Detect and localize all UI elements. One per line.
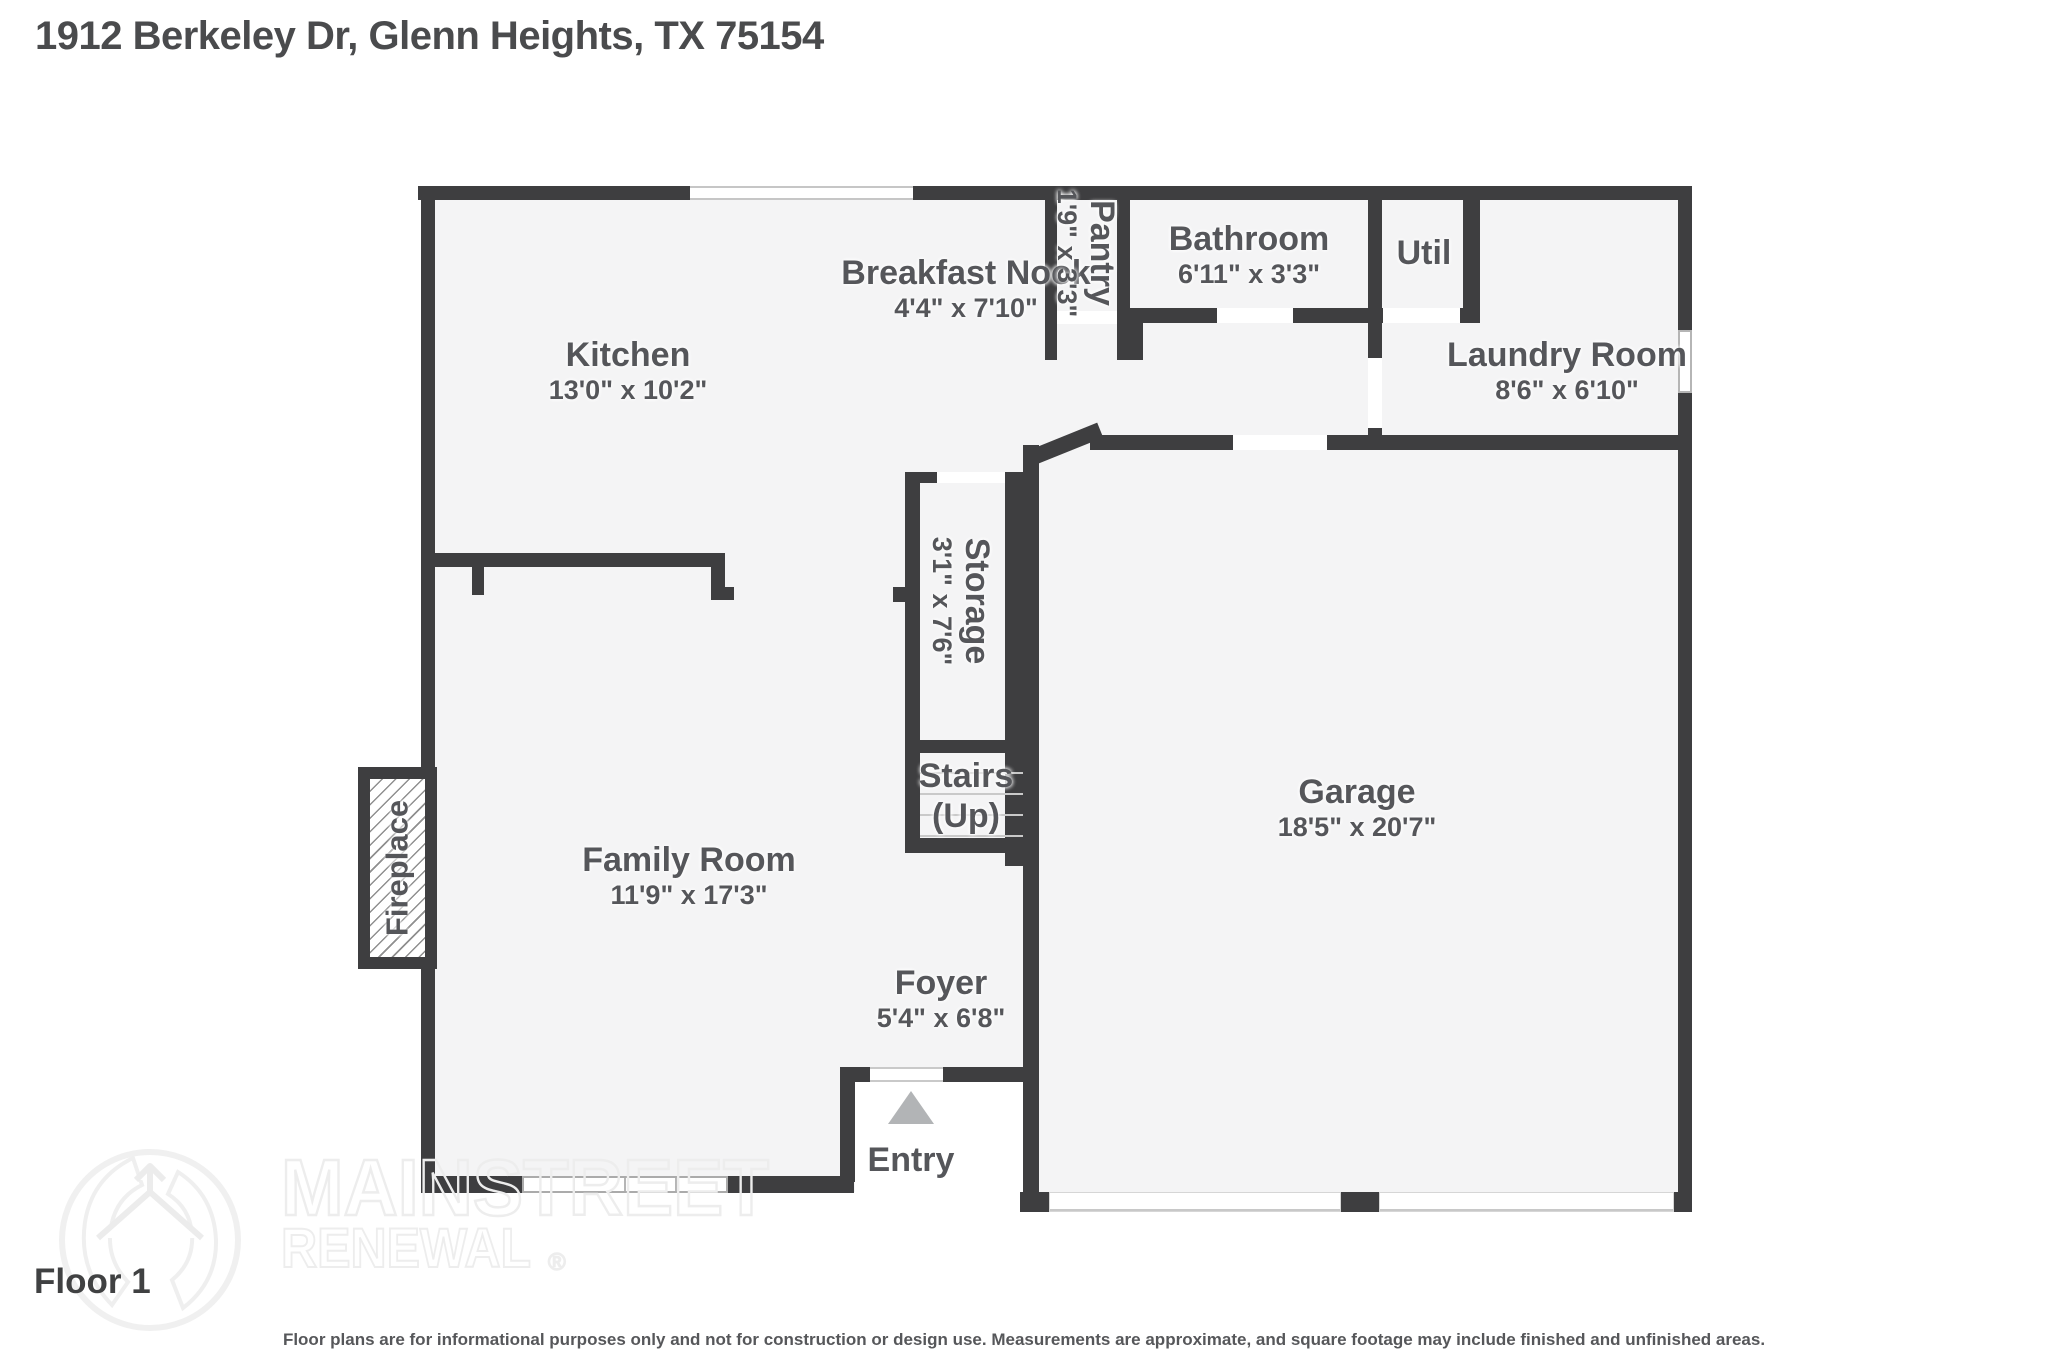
wall [840,1082,855,1182]
garage-door [1379,1192,1674,1212]
wall [1678,393,1692,1212]
family-room-window [522,1176,728,1193]
util-label: Util [1397,233,1452,273]
entry-label: Entry [868,1140,955,1180]
garage-label: Garage 18'5" x 20'7" [1278,772,1437,844]
wall [1368,428,1382,441]
wall [1090,435,1233,450]
entry-door [870,1067,943,1082]
wall [725,587,734,600]
wall [913,186,1049,200]
floor-plan-page: 1912 Berkeley Dr, Glenn Heights, TX 7515… [0,0,2048,1365]
wall [1341,1192,1379,1212]
wall [840,1067,870,1082]
wall [1368,198,1382,360]
wall [893,587,905,602]
wall [1117,323,1143,360]
wall [905,740,1030,753]
window [690,186,913,200]
storage-label: Storage 3'1" x 7'6" [925,537,997,666]
util-door [1383,308,1460,323]
wall [418,186,690,200]
storage-door [937,472,1005,483]
laundry-room-label: Laundry Room 8'6" x 6'10" [1447,335,1687,407]
wall [1020,1192,1049,1212]
fireplace-label: Fireplace [380,800,417,936]
garage-interior-door [1233,435,1327,450]
watermark-line2: RENEWAL [281,1216,531,1279]
wall [1463,198,1480,323]
wall [1130,308,1217,323]
watermark-reg: ® [548,1249,566,1276]
wall [421,1176,522,1193]
wall [421,553,725,567]
wall [905,472,920,853]
bathroom-label: Bathroom 6'11" x 3'3" [1169,219,1330,291]
wall [943,1067,1025,1082]
disclaimer-text: Floor plans are for informational purpos… [0,1330,2048,1350]
entry-arrow-icon [888,1091,934,1124]
wall [472,567,484,595]
wall [421,968,435,1193]
page-title: 1912 Berkeley Dr, Glenn Heights, TX 7515… [35,14,824,59]
floor-number-label: Floor 1 [34,1262,151,1302]
stairs-label: Stairs (Up) [919,756,1014,836]
wall [421,186,435,770]
family-room-label: Family Room 11'9" x 17'3" [582,840,795,912]
foyer-label: Foyer 5'4" x 6'8" [877,963,1006,1035]
wall [711,553,725,600]
garage-door [1049,1192,1341,1212]
wall [905,838,1030,853]
wall [728,1176,854,1193]
kitchen-label: Kitchen 13'0" x 10'2" [549,335,708,407]
bathroom-door [1217,308,1293,323]
wall [1678,186,1692,330]
pantry-label: Pantry 1'9" x 3'3" [1050,189,1122,318]
wall [1674,1192,1692,1212]
laundry-door [1368,358,1382,428]
